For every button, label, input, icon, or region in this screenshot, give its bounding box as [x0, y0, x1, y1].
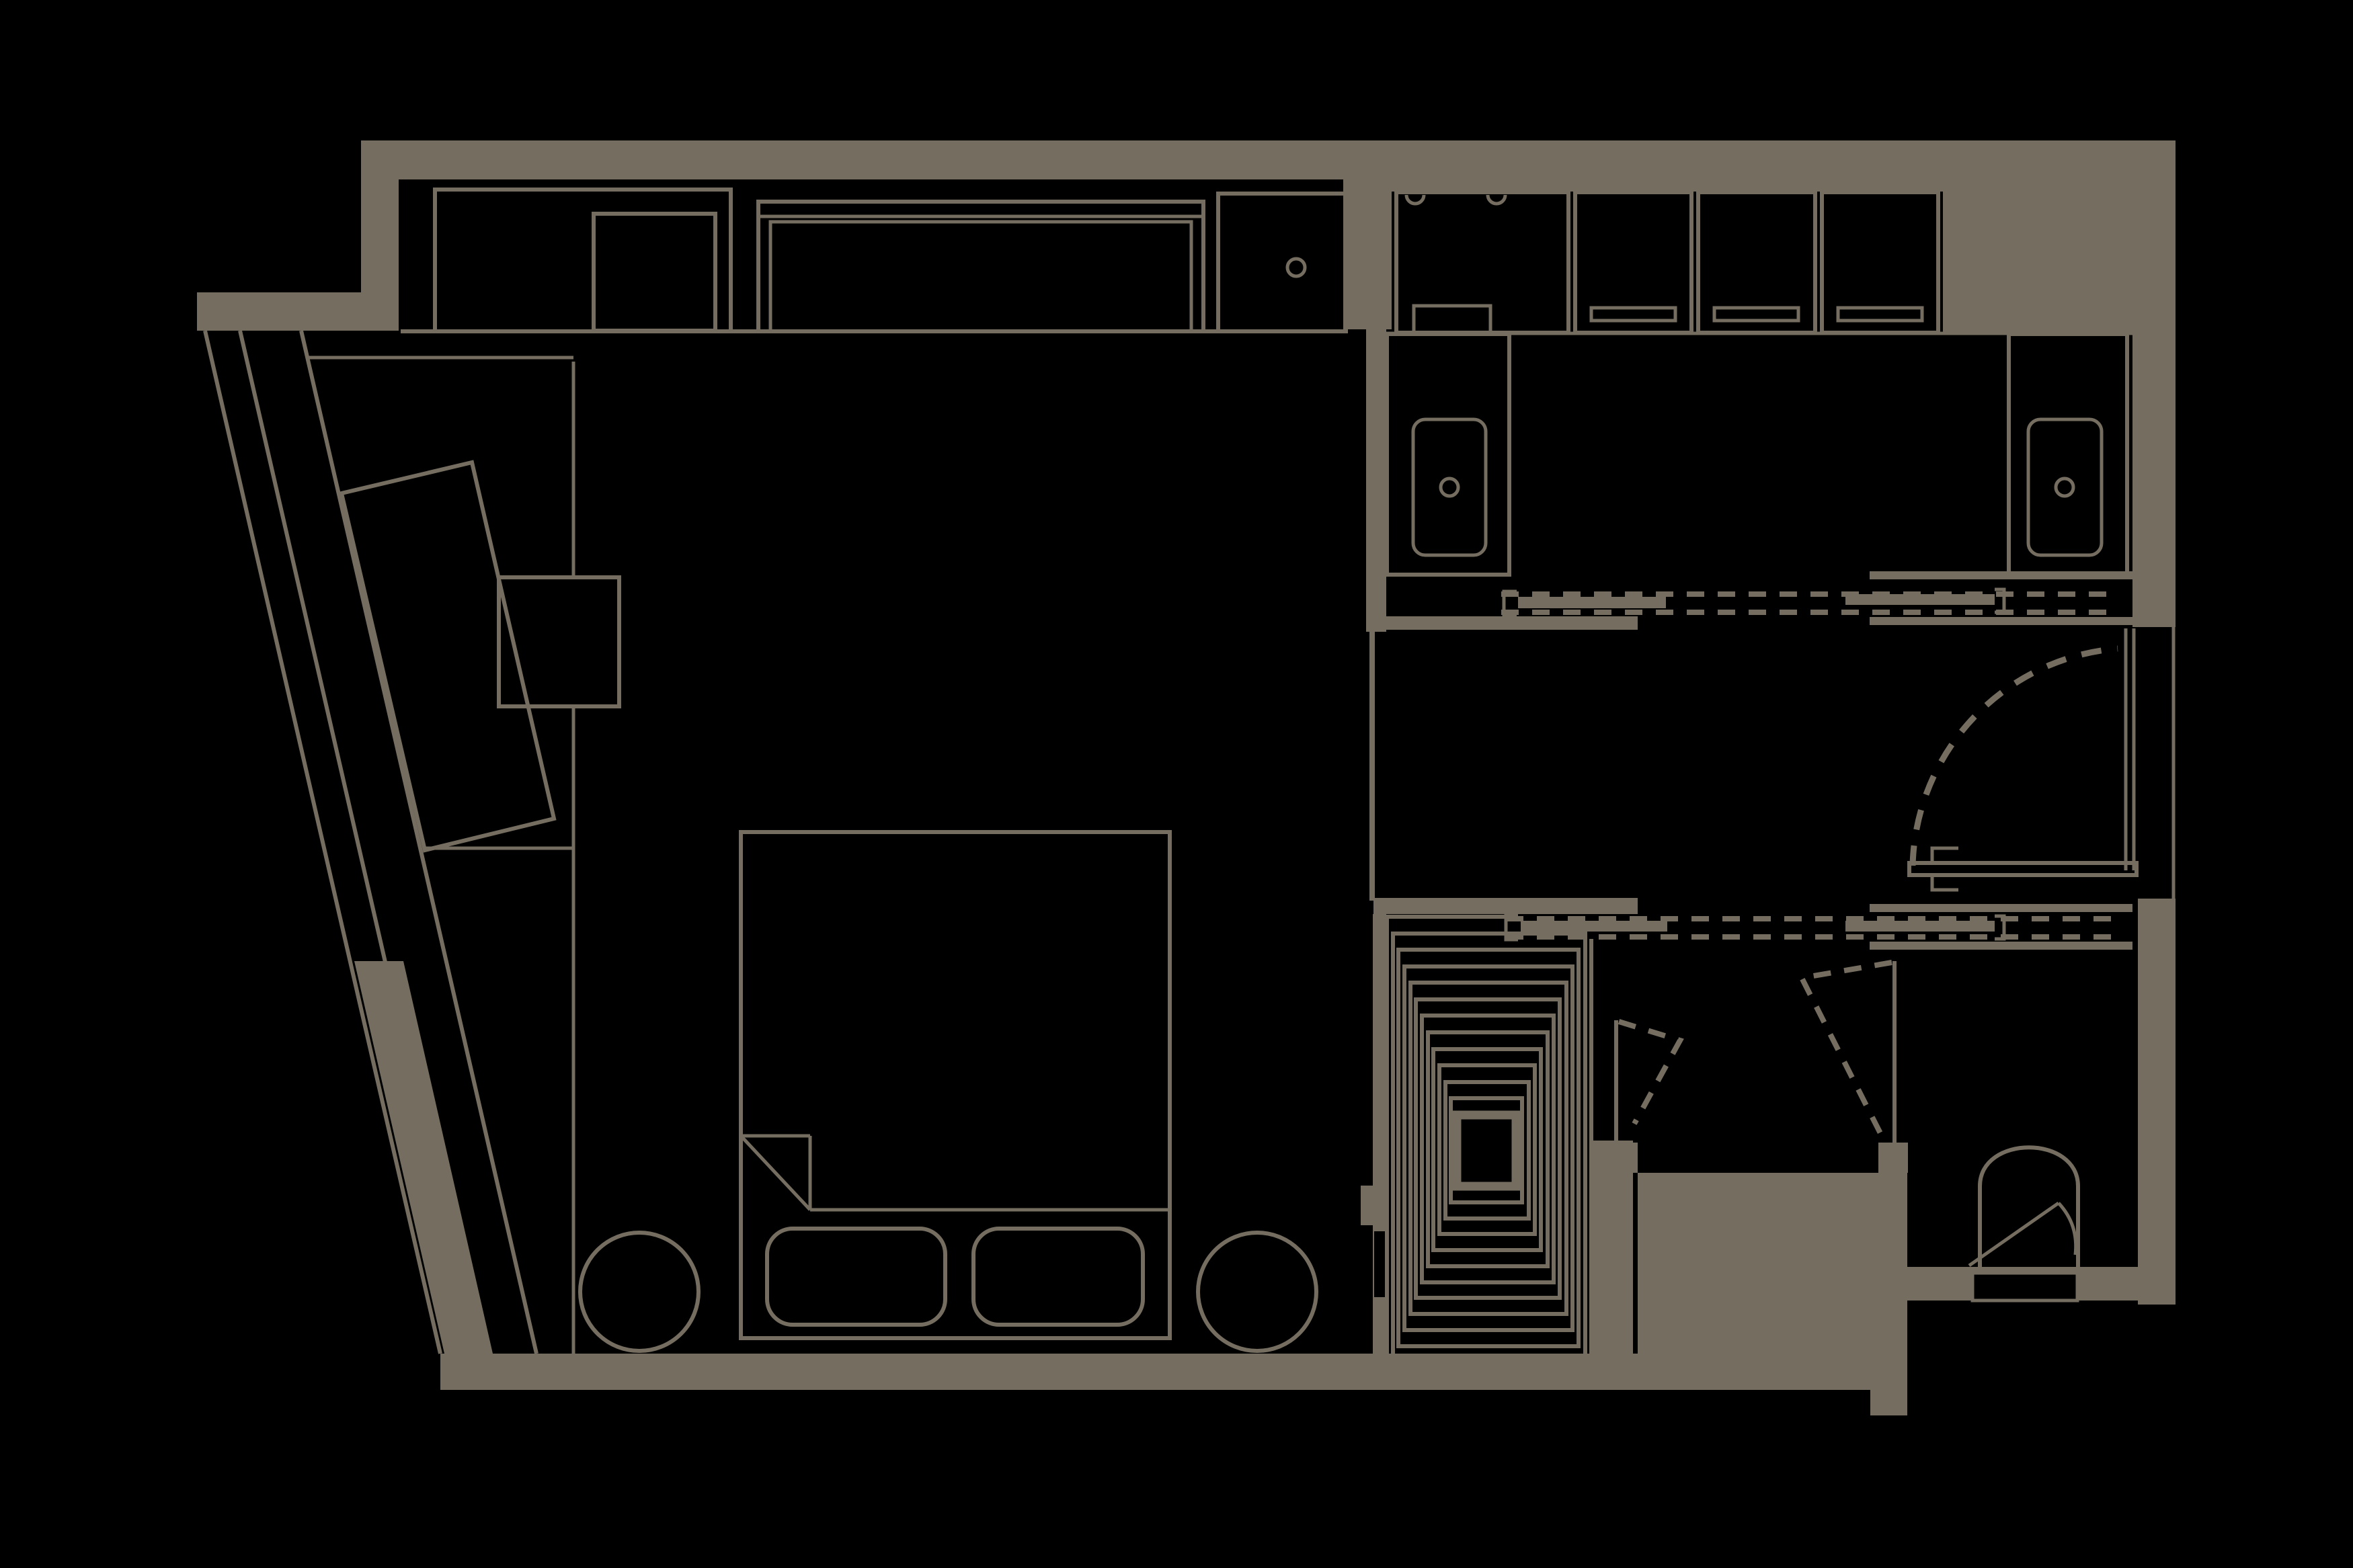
stair-well-center — [1457, 1115, 1516, 1186]
floorplan-stage: Apartment unit floor plan — black backgr… — [0, 0, 2353, 1568]
top-wall-right — [1392, 140, 2176, 192]
floorplan-svg: Apartment unit floor plan — black backgr… — [0, 0, 2353, 1568]
swing-arc-dashed — [1619, 1022, 1680, 1124]
bathroom-south-wall — [1386, 616, 1638, 630]
bench-cushion — [767, 1229, 945, 1325]
angled-wall-solid-band — [354, 961, 493, 1354]
shower-seat — [1414, 306, 1490, 333]
corridor-top-wall — [1373, 898, 1638, 914]
door-handle-bracket — [1932, 875, 1958, 890]
window-wall-outer-line — [205, 331, 440, 1354]
partition-wall-upper — [1366, 329, 1386, 632]
shower-hinge-icon — [1488, 195, 1505, 204]
entry-door-leaf[interactable] — [1909, 863, 2137, 875]
wardrobe-inner-shelf — [594, 214, 715, 331]
vanity-right — [2009, 334, 2127, 575]
lower-pocket-bottom-jamb — [1870, 942, 2132, 950]
toilet-lid-line — [1969, 1203, 2059, 1266]
locker-slot — [1714, 308, 1798, 321]
swing-arc-dashed — [1802, 962, 1892, 1141]
entry-door[interactable] — [1909, 627, 2173, 899]
wall-niche — [1374, 1231, 1386, 1297]
right-wall-upper — [2132, 335, 2176, 627]
sheet-fold-diagonal — [741, 1136, 810, 1210]
shower-cabin — [1396, 192, 1568, 333]
slider-pull-handle — [1995, 916, 2004, 939]
tilted-desk — [342, 462, 554, 850]
corridor-sliding-door[interactable] — [1506, 915, 2118, 940]
faucet-ring-icon — [2056, 479, 2073, 496]
cabinet[interactable] — [1218, 194, 1346, 331]
swing-door-post-right — [1878, 1143, 1908, 1173]
sliding-door-panel[interactable] — [1518, 597, 1666, 608]
upper-pocket-bottom-jamb — [1870, 617, 2132, 625]
bedroom-furniture — [342, 462, 1316, 1351]
door-handle-bracket — [1932, 848, 1958, 863]
closet-row — [401, 190, 1346, 331]
toilet-lid-arc — [2059, 1203, 2076, 1255]
stair-treads — [1387, 917, 1591, 1378]
shower-hinge-icon — [1406, 195, 1424, 204]
faucet-ring-icon — [1441, 479, 1458, 496]
wc-room — [1969, 1147, 2078, 1301]
top-wall-left — [361, 140, 1392, 179]
bench-cushion — [973, 1229, 1143, 1325]
wc-swing-door[interactable] — [1802, 961, 1895, 1143]
cabinet-knob-icon — [1287, 259, 1305, 276]
sliding-door-panel[interactable] — [1845, 921, 1995, 932]
toilet-tank — [1972, 1273, 2077, 1301]
bed — [741, 832, 1170, 1338]
side-table — [1198, 1233, 1316, 1351]
bottom-wall-band — [440, 1354, 1870, 1390]
stair-tread — [1398, 950, 1579, 1346]
door-swing-arc — [1913, 649, 2118, 866]
wc-left-wall — [1870, 1173, 1907, 1415]
swing-door-post-left — [1608, 1143, 1638, 1173]
locker-slot — [1838, 308, 1922, 321]
console-inner — [770, 222, 1191, 331]
locker-slot — [1591, 308, 1675, 321]
partition-block-top — [1343, 179, 1392, 329]
angled-window-wall — [205, 331, 573, 1354]
basin-left — [1413, 419, 1486, 555]
sliding-door-panel[interactable] — [1521, 921, 1667, 932]
desk-return — [499, 577, 619, 706]
shaft-block-topright — [1943, 192, 2176, 335]
vanity-left — [1387, 334, 1509, 575]
stair-swing-door[interactable] — [1616, 1020, 1680, 1143]
service-block — [1638, 1173, 1870, 1354]
bathroom-sliding-door[interactable] — [1501, 589, 2118, 616]
wall-pilaster — [1361, 1186, 1373, 1225]
left-wall-band — [197, 292, 365, 331]
basin-right — [2028, 419, 2102, 555]
window-wall-mid-line — [240, 331, 475, 1354]
wardrobe[interactable] — [435, 190, 731, 331]
right-wall-lower — [2138, 899, 2176, 1305]
partition-wall-hall — [1369, 632, 1375, 901]
top-left-corner-block — [361, 140, 399, 331]
sliding-door-panel[interactable] — [1845, 594, 1995, 605]
lower-pocket-top-jamb — [1870, 904, 2132, 912]
side-table — [580, 1233, 699, 1351]
